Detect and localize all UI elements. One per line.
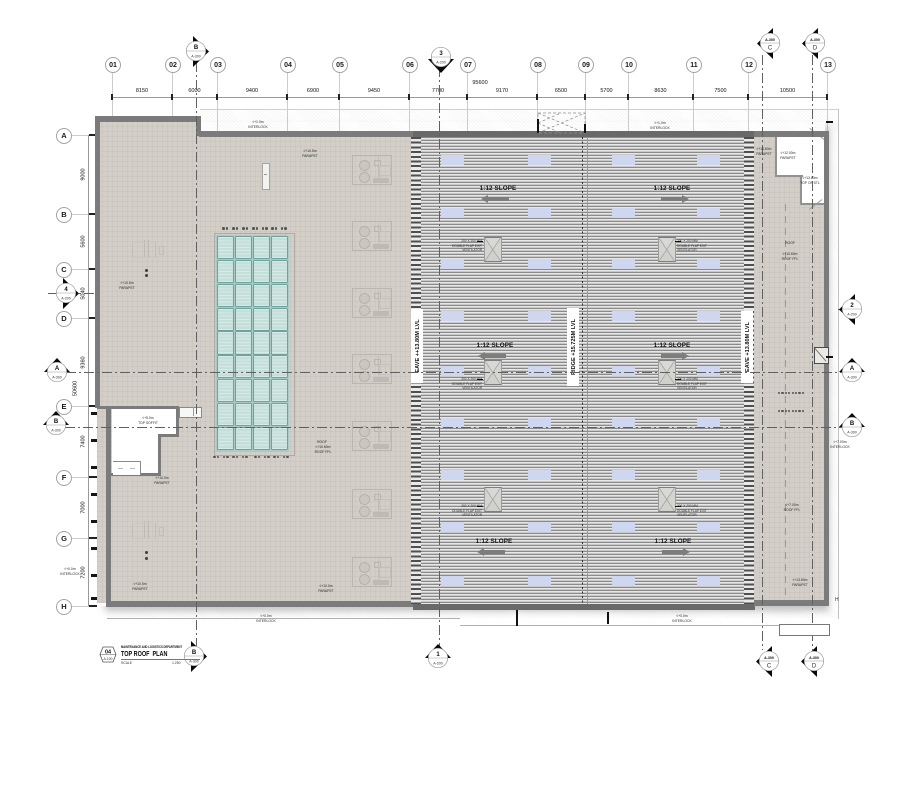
svg-text:B: B <box>54 419 59 425</box>
svg-text:C: C <box>767 664 772 670</box>
svg-text:A-200: A-200 <box>61 297 71 301</box>
svg-text:B: B <box>850 421 855 427</box>
svg-text:A-300: A-300 <box>765 38 775 42</box>
svg-text:A-300: A-300 <box>52 376 62 380</box>
svg-text:B: B <box>192 650 197 656</box>
svg-text:A-100: A-100 <box>103 657 112 661</box>
svg-text:A: A <box>850 366 855 372</box>
svg-text:04: 04 <box>105 650 112 656</box>
svg-text:A-300: A-300 <box>847 376 857 380</box>
svg-text:A-200: A-200 <box>847 313 857 317</box>
svg-text:B: B <box>194 45 199 51</box>
svg-text:EAVE ++13.80M LVL: EAVE ++13.80M LVL <box>415 319 421 373</box>
svg-text:A-300: A-300 <box>809 656 819 660</box>
svg-text:A-300: A-300 <box>51 429 61 433</box>
svg-text:A-300: A-300 <box>810 38 820 42</box>
svg-text:D: D <box>812 664 817 670</box>
svg-text:A-300: A-300 <box>847 431 857 435</box>
svg-text:A-300: A-300 <box>191 55 201 59</box>
svg-text:EAVE +13.80M LVL: EAVE +13.80M LVL <box>745 321 751 372</box>
svg-text:A-300: A-300 <box>764 656 774 660</box>
svg-text:A-200: A-200 <box>436 61 446 65</box>
svg-text:A-200: A-200 <box>433 662 443 666</box>
svg-text:D: D <box>813 46 818 52</box>
svg-text:A: A <box>55 366 60 372</box>
svg-text:C: C <box>768 46 773 52</box>
svg-text:RIDGE +15.725M LVL: RIDGE +15.725M LVL <box>571 318 577 375</box>
